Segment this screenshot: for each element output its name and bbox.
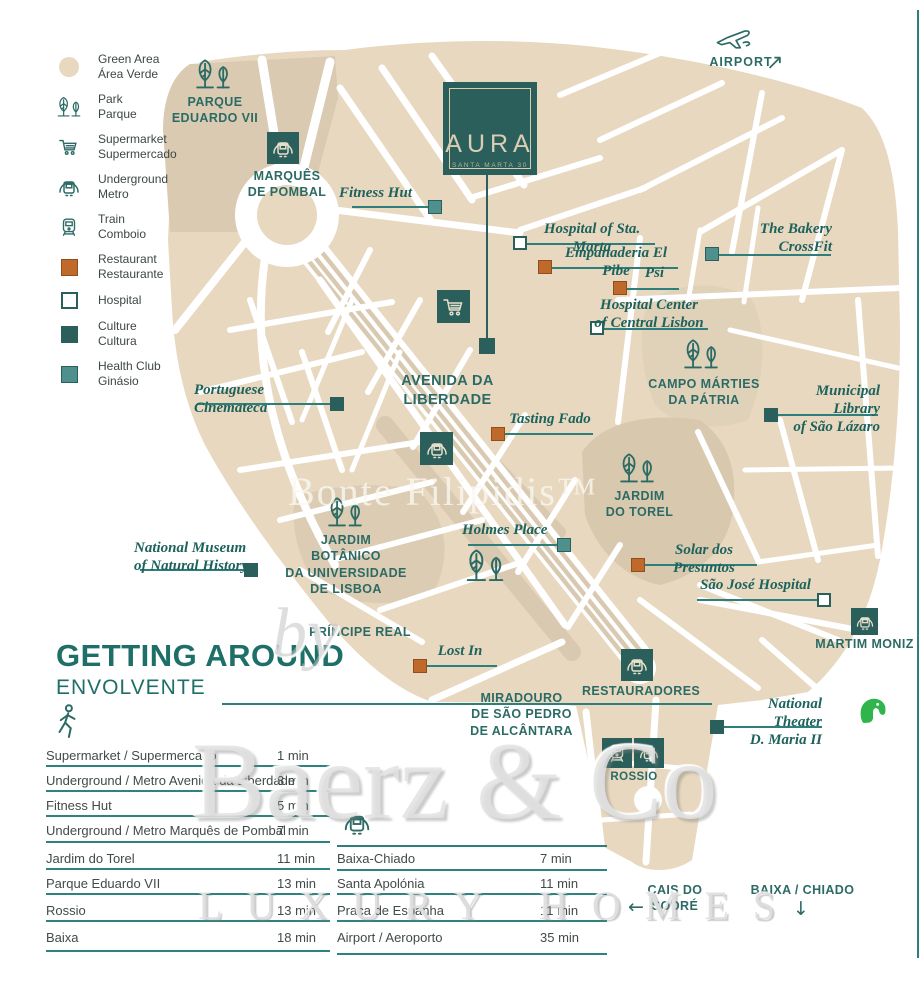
metro-icon bbox=[342, 808, 372, 843]
poi-label-tasting-fado: Tasting Fado bbox=[505, 410, 595, 428]
health-club-marker bbox=[428, 200, 442, 214]
transit-row-time: 11 min bbox=[540, 876, 578, 891]
area-label-restauradores: RESTAURADORES bbox=[582, 683, 692, 699]
restaurant-marker bbox=[413, 659, 427, 673]
health-club-marker bbox=[705, 247, 719, 261]
poi-label-psi: Psi bbox=[627, 264, 682, 282]
restaurant-marker bbox=[491, 427, 505, 441]
legend-item-culture: CultureCultura bbox=[54, 319, 177, 349]
poi-label-cinemateca: Portuguese Cinemateca bbox=[194, 381, 339, 417]
legend-label: Health ClubGinásio bbox=[98, 359, 161, 389]
restaurant-marker bbox=[538, 260, 552, 274]
area-label-jardim-torel: JARDIM DO TOREL bbox=[592, 488, 687, 521]
metro-station-icon-rossio bbox=[634, 738, 664, 768]
airport-direction-arrow: ↗ bbox=[766, 50, 784, 74]
table-row-line bbox=[337, 869, 607, 871]
transit-table-top-line bbox=[337, 845, 607, 847]
legend-item-restaurant: RestaurantRestaurante bbox=[54, 252, 177, 282]
walk-row-time: 5 min bbox=[277, 798, 309, 813]
hospital-square-icon bbox=[54, 292, 84, 309]
park-trees-icon bbox=[462, 548, 508, 590]
walk-row-time: 7 min bbox=[277, 823, 309, 838]
aura-location-marker bbox=[479, 338, 495, 354]
shopping-cart-icon bbox=[54, 136, 84, 158]
poi-connector bbox=[697, 599, 817, 601]
restaurant-marker bbox=[613, 281, 627, 295]
metro-station-icon-restauradores bbox=[621, 649, 653, 681]
transit-row-label: Baixa-Chiado bbox=[337, 851, 415, 866]
baixa-chiado-arrow: ↓ bbox=[793, 898, 809, 920]
poi-label-solar-presuntos: Solar dos Presuntos bbox=[648, 541, 760, 577]
restaurant-marker bbox=[631, 558, 645, 572]
train-icon bbox=[54, 215, 84, 239]
hospital-marker bbox=[817, 593, 831, 607]
poi-connector bbox=[505, 433, 593, 435]
park-trees-icon bbox=[616, 452, 658, 491]
table-row-line bbox=[46, 841, 330, 843]
legend-item-supermarket: SupermarketSupermercado bbox=[54, 132, 177, 162]
transit-row-time: 7 min bbox=[540, 851, 572, 866]
park-trees-icon bbox=[680, 338, 722, 377]
area-label-miradouro: MIRADOURO DE SÃO PEDRO DE ALCÂNTARA bbox=[455, 690, 588, 739]
table-row-line bbox=[46, 950, 330, 952]
legend-item-train: TrainComboio bbox=[54, 212, 177, 242]
walk-row-time: 13 min bbox=[277, 903, 316, 918]
hospital-marker bbox=[513, 236, 527, 250]
legend-label: Hospital bbox=[98, 293, 141, 308]
poi-connector bbox=[427, 665, 497, 667]
table-row-line bbox=[46, 893, 330, 895]
health-club-marker bbox=[557, 538, 571, 552]
poi-connector bbox=[627, 288, 679, 290]
walk-row-time: 11 min bbox=[277, 851, 315, 866]
aura-property-box: AURA SANTA MARTA 30 bbox=[443, 82, 537, 175]
area-label-parque-eduardo: PARQUE EDUARDO VII bbox=[150, 94, 280, 127]
walk-row-label: Supermarket / Supermercado bbox=[46, 748, 217, 763]
legend-label: SupermarketSupermercado bbox=[98, 132, 177, 162]
metro-icon bbox=[54, 175, 84, 199]
page-border-line bbox=[917, 10, 919, 958]
getting-around-title: GETTING AROUND bbox=[56, 638, 344, 674]
area-label-martim-moniz: MARTIM MONIZ bbox=[812, 636, 917, 652]
legend-item-green-area: Green AreaÁrea Verde bbox=[54, 52, 177, 82]
walk-row-label: Underground / Metro Marquês de Pombal bbox=[46, 823, 286, 838]
property-address: SANTA MARTA 30 bbox=[443, 162, 537, 169]
restaurant-square-icon bbox=[54, 259, 84, 276]
legend-label: Green AreaÁrea Verde bbox=[98, 52, 159, 82]
property-name: AURA bbox=[443, 130, 537, 159]
table-row-line bbox=[337, 953, 607, 955]
table-row-line bbox=[337, 893, 607, 895]
walk-row-label: Rossio bbox=[46, 903, 86, 918]
table-row-line bbox=[46, 920, 330, 922]
getting-around-subtitle: ENVOLVENTE bbox=[56, 676, 206, 700]
park-trees-icon bbox=[324, 496, 366, 535]
legend-label: UndergroundMetro bbox=[98, 172, 168, 202]
poi-label-municipal-library: Municipal Library of São Lázaro bbox=[768, 382, 880, 436]
aura-connector-line bbox=[486, 174, 488, 340]
poi-label-fitness-hut: Fitness Hut bbox=[312, 184, 412, 202]
metro-station-icon-martim-moniz bbox=[851, 608, 878, 635]
metro-station-icon-marques-pombal bbox=[267, 132, 299, 164]
poi-label-holmes-place: Holmes Place bbox=[462, 521, 560, 539]
table-row-line bbox=[46, 765, 330, 767]
lisbon-location-map-page: Green AreaÁrea Verde ParkParque Supermar… bbox=[0, 0, 924, 1000]
poi-connector bbox=[468, 544, 557, 546]
poi-label-bakery-crossfit: The Bakery CrossFit bbox=[737, 220, 832, 256]
legend-label: RestaurantRestaurante bbox=[98, 252, 163, 282]
transit-row-time: 35 min bbox=[540, 930, 579, 945]
walk-row-label: Baixa bbox=[46, 930, 79, 945]
culture-square-icon bbox=[54, 326, 84, 343]
legend-label: CultureCultura bbox=[98, 319, 137, 349]
legend-item-underground: UndergroundMetro bbox=[54, 172, 177, 202]
transit-row-label: Praça de Espanha bbox=[337, 903, 444, 918]
table-row-line bbox=[46, 790, 330, 792]
metro-station-icon-avenida bbox=[420, 432, 453, 465]
area-label-campo-martires: CAMPO MÁRTIES DA PÁTRIA bbox=[638, 376, 770, 409]
walking-person-icon bbox=[52, 702, 82, 747]
health-club-square-icon bbox=[54, 366, 84, 383]
transit-row-label: Santa Apolónia bbox=[337, 876, 424, 891]
table-row-line bbox=[46, 815, 330, 817]
elephant-icon bbox=[856, 694, 889, 732]
area-label-rossio: ROSSIO bbox=[603, 770, 665, 785]
walk-row-time: 3 min bbox=[277, 773, 309, 788]
poi-label-hospital-center: Hospital Center of Central Lisbon bbox=[585, 296, 713, 332]
area-label-baixa-chiado: BAIXA / CHIADO bbox=[750, 882, 855, 898]
walk-row-time: 13 min bbox=[277, 876, 316, 891]
train-station-icon-rossio bbox=[602, 738, 632, 768]
walk-row-label: Jardim do Torel bbox=[46, 851, 135, 866]
legend-item-hospital: Hospital bbox=[54, 292, 177, 309]
walk-row-label: Fitness Hut bbox=[46, 798, 112, 813]
transit-row-time: 11 min bbox=[540, 903, 578, 918]
green-area-icon bbox=[54, 57, 84, 77]
table-row-line bbox=[337, 920, 607, 922]
table-row-line bbox=[46, 868, 330, 870]
legend-label: ParkParque bbox=[98, 92, 137, 122]
walk-row-time: 18 min bbox=[277, 930, 316, 945]
area-label-avenida-liberdade: AVENIDA DA LIBERDADE bbox=[385, 372, 510, 410]
walk-row-time: 1 min bbox=[277, 748, 309, 763]
poi-label-national-museum: National Museum of Natural History bbox=[134, 539, 252, 575]
poi-label-sao-jose-hospital: São José Hospital bbox=[693, 576, 818, 594]
poi-connector bbox=[352, 206, 430, 208]
transit-row-label: Airport / Aeroporto bbox=[337, 930, 443, 945]
walk-row-label: Parque Eduardo VII bbox=[46, 876, 160, 891]
legend-label: TrainComboio bbox=[98, 212, 146, 242]
poi-label-national-theater: National Theater D. Maria II bbox=[722, 695, 822, 749]
cais-sodre-arrow: ← bbox=[628, 896, 644, 918]
legend-item-health-club: Health ClubGinásio bbox=[54, 359, 177, 389]
walk-row-label: Underground / Metro Avenida da Liberdade bbox=[46, 773, 295, 788]
park-trees-icon bbox=[54, 96, 84, 119]
supermarket-icon bbox=[437, 290, 470, 323]
poi-label-lost-in: Lost In bbox=[430, 642, 490, 660]
park-trees-icon bbox=[192, 58, 234, 97]
area-label-jardim-botanico: JARDIM BOTÂNICO DA UNIVERSIDADE DE LISBO… bbox=[285, 532, 407, 597]
